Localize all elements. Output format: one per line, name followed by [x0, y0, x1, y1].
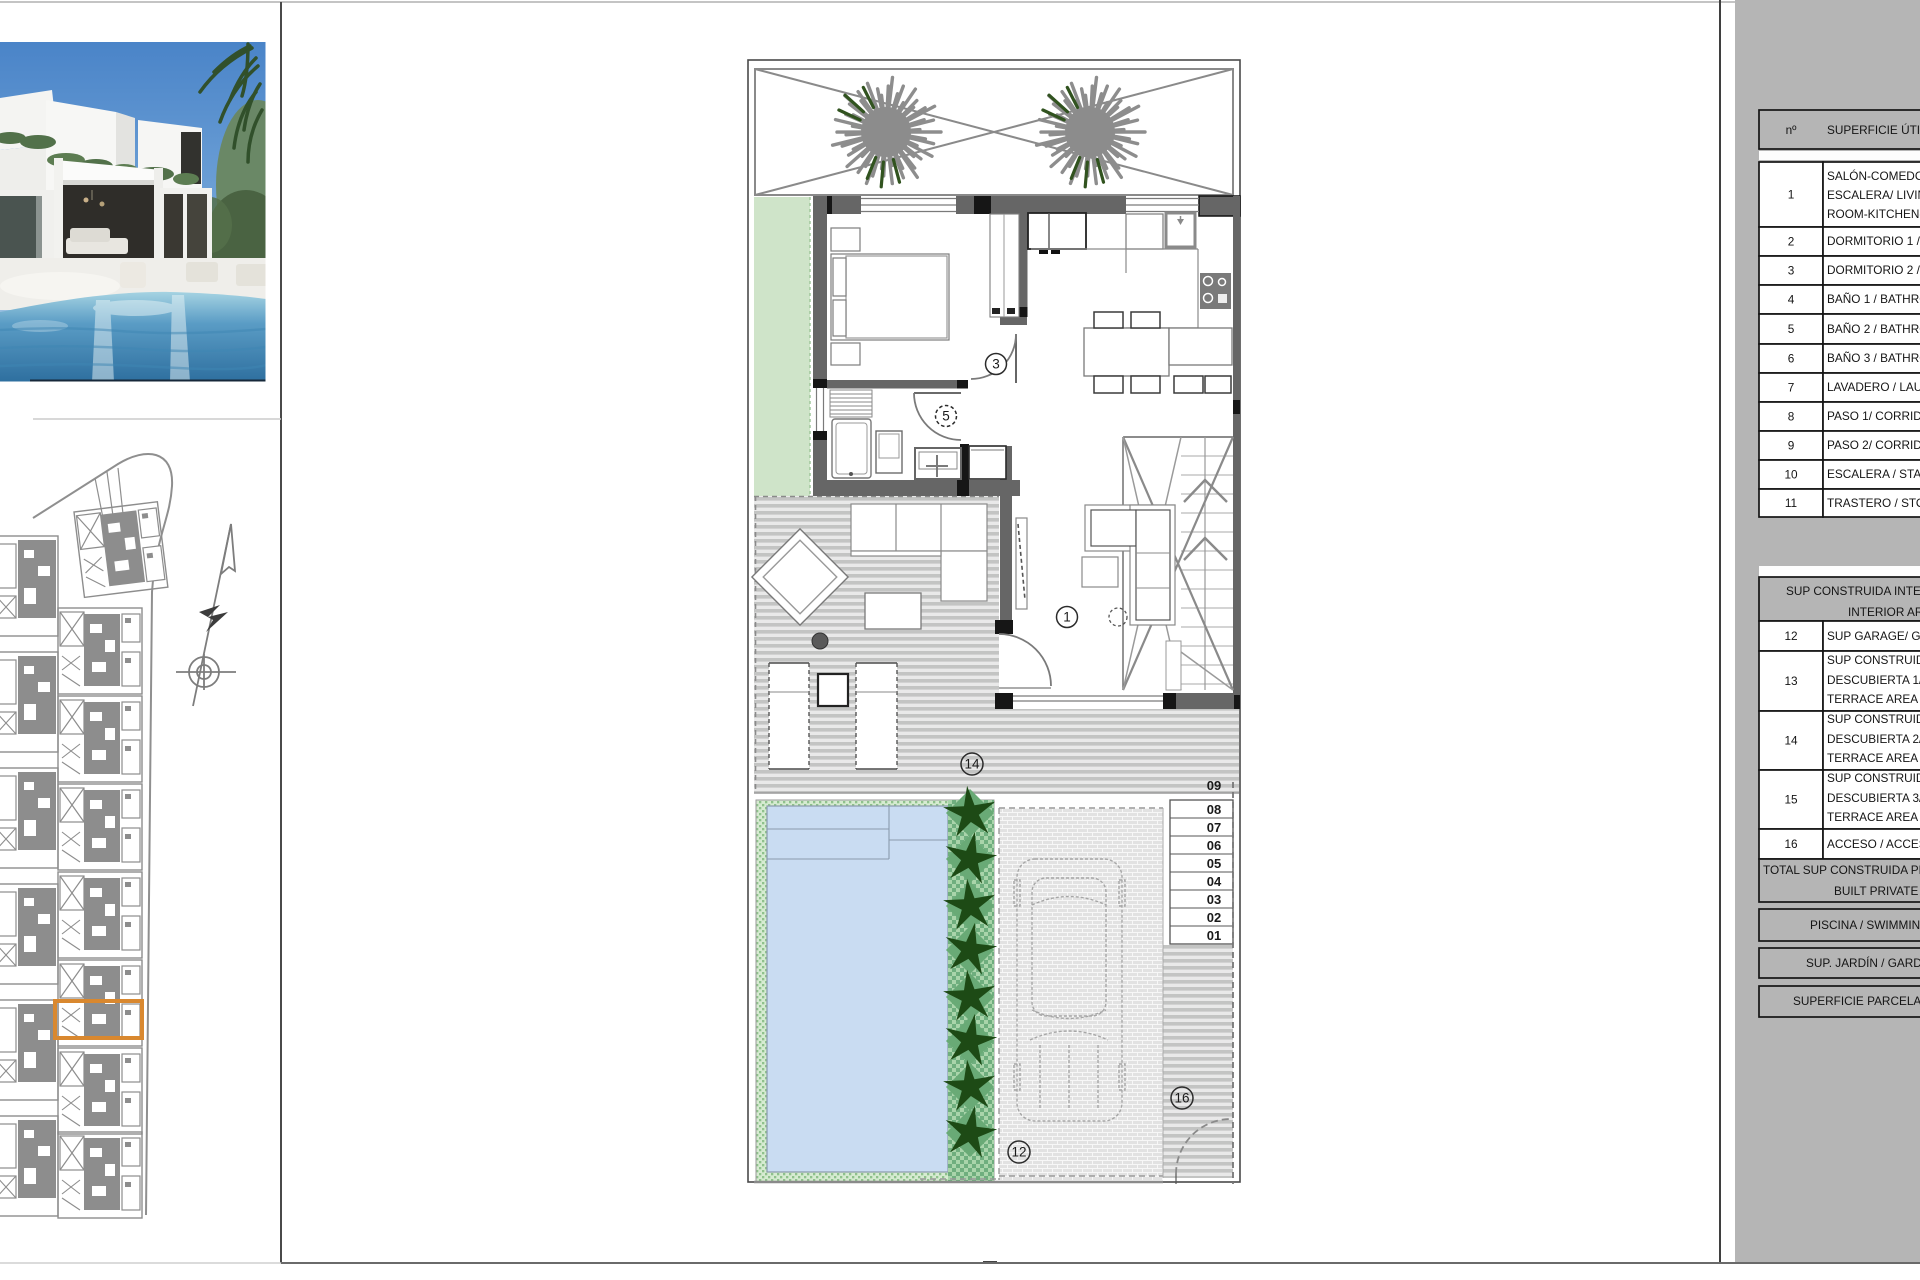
svg-text:BAÑO 3 / BATHROOM 3: BAÑO 3 / BATHROOM 3 [1827, 351, 1920, 365]
svg-text:02: 02 [1207, 910, 1221, 925]
svg-text:01: 01 [1207, 928, 1221, 943]
svg-text:PASO 1/ CORRIDOR 1: PASO 1/ CORRIDOR 1 [1827, 409, 1920, 423]
svg-text:09: 09 [1207, 778, 1221, 793]
svg-text:14: 14 [1784, 734, 1798, 748]
svg-text:15: 15 [1784, 793, 1798, 807]
svg-text:8: 8 [1788, 410, 1795, 424]
svg-text:5: 5 [1788, 322, 1795, 336]
svg-text:9: 9 [1788, 439, 1795, 453]
svg-text:SUPERFICIE ÚTIL / USEFUL AREA: SUPERFICIE ÚTIL / USEFUL AREA [1827, 123, 1920, 137]
svg-text:10: 10 [1784, 468, 1798, 482]
svg-text:07: 07 [1207, 820, 1221, 835]
svg-text:7: 7 [1788, 381, 1795, 395]
svg-text:TERRACE AREA 3: TERRACE AREA 3 [1827, 810, 1920, 824]
svg-text:SUP CONSTRUIDA: SUP CONSTRUIDA [1827, 712, 1920, 726]
svg-text:ROOM-KITCHEN-STAIRS: ROOM-KITCHEN-STAIRS [1827, 207, 1920, 221]
svg-text:SUP GARAGE/ GARAGE AREA: SUP GARAGE/ GARAGE AREA [1827, 629, 1920, 643]
svg-text:LAVADERO / LAUNDRY: LAVADERO / LAUNDRY [1827, 380, 1920, 394]
svg-text:DESCUBIERTA 1/ OPEN: DESCUBIERTA 1/ OPEN [1827, 673, 1920, 687]
svg-text:4: 4 [1788, 293, 1795, 307]
svg-text:SUP CONSTRUIDA: SUP CONSTRUIDA [1827, 771, 1920, 785]
svg-text:06: 06 [1207, 838, 1221, 853]
svg-text:DESCUBIERTA 3/ OPEN: DESCUBIERTA 3/ OPEN [1827, 791, 1920, 805]
svg-text:SUP CONSTRUIDA: SUP CONSTRUIDA [1827, 653, 1920, 667]
svg-text:2: 2 [1788, 235, 1795, 249]
svg-text:TOTAL SUP CONSTRUIDA PRIVATIVA: TOTAL SUP CONSTRUIDA PRIVATIVA/ TOTAL [1763, 863, 1920, 877]
svg-text:08: 08 [1207, 802, 1221, 817]
svg-text:DORMITORIO 2 / BEDROOM 2: DORMITORIO 2 / BEDROOM 2 [1827, 263, 1920, 277]
svg-text:12: 12 [1784, 629, 1797, 643]
svg-text:PISCINA / SWIMMING POOL: PISCINA / SWIMMING POOL [1810, 918, 1920, 932]
svg-text:ESCALERA / STAIRS: ESCALERA / STAIRS [1827, 467, 1920, 481]
svg-text:SUP. JARDÍN / GARDEN AREA: SUP. JARDÍN / GARDEN AREA [1806, 956, 1920, 970]
svg-text:16: 16 [1784, 837, 1798, 851]
svg-text:nº: nº [1786, 123, 1798, 137]
svg-text:1: 1 [1063, 610, 1071, 625]
svg-text:13: 13 [1784, 674, 1798, 688]
svg-text:3: 3 [992, 357, 1000, 372]
svg-text:TERRACE AREA 1: TERRACE AREA 1 [1827, 692, 1920, 706]
svg-text:DORMITORIO 1 / BEDROOM 1: DORMITORIO 1 / BEDROOM 1 [1827, 234, 1920, 248]
svg-text:3: 3 [1788, 264, 1795, 278]
svg-text:5: 5 [942, 409, 950, 424]
svg-text:11: 11 [1785, 496, 1797, 510]
svg-text:INTERIOR AREA: INTERIOR AREA [1848, 605, 1920, 619]
svg-text:SUP CONSTRUIDA INTERIOR /: SUP CONSTRUIDA INTERIOR / [1786, 584, 1920, 598]
svg-text:14: 14 [964, 757, 980, 772]
svg-text:ESCALERA/ LIVING-DINING: ESCALERA/ LIVING-DINING [1827, 188, 1920, 202]
svg-text:6: 6 [1788, 352, 1795, 366]
svg-text:12: 12 [1011, 1145, 1026, 1160]
svg-text:1: 1 [1788, 188, 1795, 202]
svg-text:DESCUBIERTA 2/ OPEN: DESCUBIERTA 2/ OPEN [1827, 732, 1920, 746]
svg-text:TRASTERO / STORAGE: TRASTERO / STORAGE [1827, 496, 1920, 510]
svg-text:04: 04 [1207, 874, 1222, 889]
svg-text:03: 03 [1207, 892, 1221, 907]
svg-text:BAÑO 1 / BATHROOM 1: BAÑO 1 / BATHROOM 1 [1827, 292, 1920, 306]
svg-text:TERRACE AREA 2: TERRACE AREA 2 [1827, 751, 1920, 765]
svg-text:16: 16 [1174, 1091, 1189, 1106]
svg-text:ACCESO / ACCESS: ACCESO / ACCESS [1827, 837, 1920, 851]
svg-text:PASO 2/ CORRIDOR 2: PASO 2/ CORRIDOR 2 [1827, 438, 1920, 452]
svg-text:SALÓN-COMEDOR-COCINA-: SALÓN-COMEDOR-COCINA- [1827, 169, 1920, 183]
svg-text:SUPERFICIE PARCELA / PLOT AREA: SUPERFICIE PARCELA / PLOT AREA [1793, 994, 1920, 1008]
svg-text:BUILT PRIVATE AREA: BUILT PRIVATE AREA [1834, 884, 1920, 898]
svg-text:05: 05 [1207, 856, 1221, 871]
svg-text:BAÑO 2 / BATHROOM 2: BAÑO 2 / BATHROOM 2 [1827, 322, 1920, 336]
